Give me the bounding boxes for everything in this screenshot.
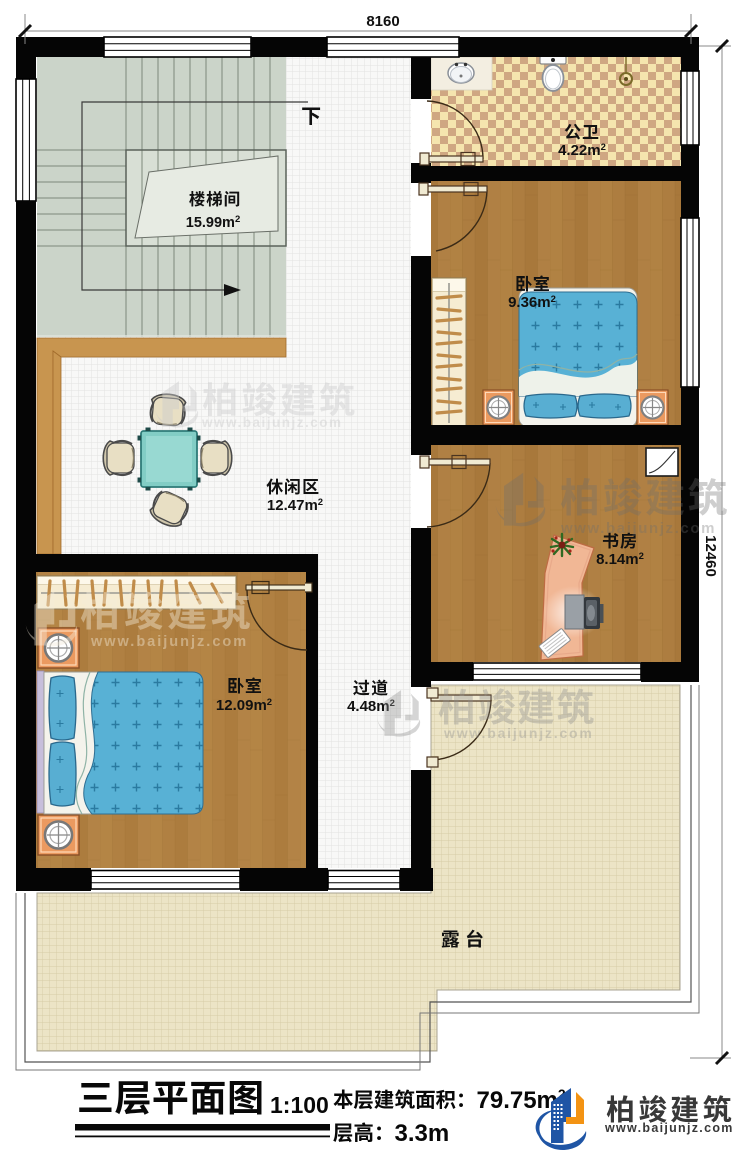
- svg-text:楼梯间: 楼梯间: [189, 186, 242, 210]
- svg-text:露台: 露台: [441, 925, 489, 952]
- svg-text:12460: 12460: [702, 535, 719, 577]
- svg-text:休闲区: 休闲区: [266, 473, 320, 498]
- svg-text:柏竣建筑: 柏竣建筑: [560, 466, 730, 524]
- svg-text:www.baijunjz.com: www.baijunjz.com: [604, 1121, 734, 1135]
- svg-text:9.36m2: 9.36m2: [508, 294, 556, 311]
- svg-text:4.22m2: 4.22m2: [558, 142, 606, 159]
- svg-text:过道: 过道: [353, 674, 389, 699]
- svg-text:12.09m2: 12.09m2: [216, 697, 272, 714]
- svg-text:卧室: 卧室: [515, 270, 551, 295]
- svg-text:卧室: 卧室: [227, 672, 263, 697]
- svg-text:12.47m2: 12.47m2: [267, 497, 323, 514]
- svg-text:8160: 8160: [366, 13, 399, 30]
- svg-text:层高：3.3m: 层高：3.3m: [333, 1116, 449, 1147]
- svg-text:三层平面图: 三层平面图: [77, 1068, 265, 1122]
- svg-text:www.baijunjz.com: www.baijunjz.com: [560, 520, 716, 537]
- svg-text:柏竣建筑: 柏竣建筑: [438, 677, 596, 732]
- svg-text:www.baijunjz.com: www.baijunjz.com: [201, 415, 343, 430]
- svg-text:1:100: 1:100: [270, 1092, 329, 1118]
- svg-text:www.baijunjz.com: www.baijunjz.com: [443, 725, 594, 741]
- svg-text:柏竣建筑: 柏竣建筑: [80, 580, 254, 638]
- svg-text:15.99m2: 15.99m2: [186, 214, 240, 231]
- svg-text:www.baijunjz.com: www.baijunjz.com: [90, 634, 248, 650]
- svg-text:本层建筑面积：79.75m2: 本层建筑面积：79.75m2: [333, 1083, 566, 1114]
- svg-text:8.14m2: 8.14m2: [596, 551, 644, 568]
- svg-text:下: 下: [301, 100, 321, 129]
- svg-text:公卫: 公卫: [564, 118, 600, 143]
